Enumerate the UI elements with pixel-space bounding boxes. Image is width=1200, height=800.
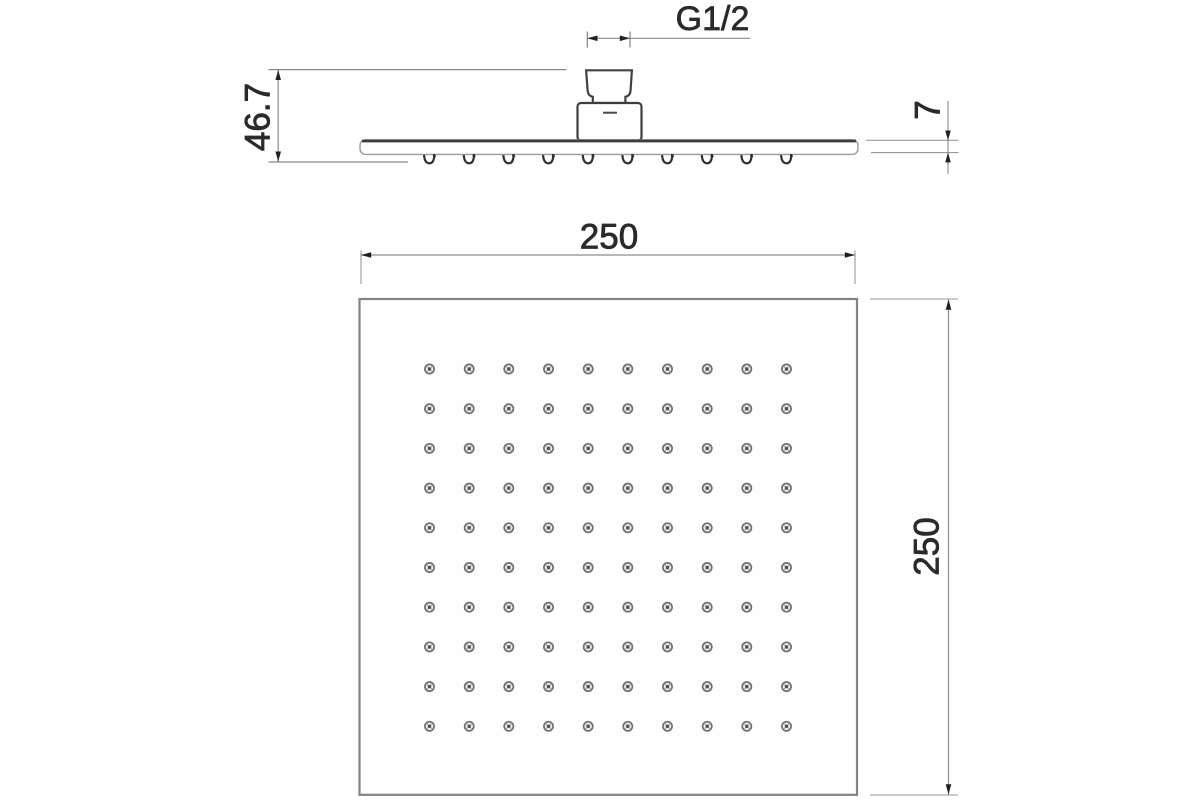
svg-text:46.7: 46.7 [238,83,277,151]
svg-text:250: 250 [580,218,638,257]
svg-text:G1/2: G1/2 [676,0,750,38]
svg-text:250: 250 [907,517,946,575]
svg-text:7: 7 [908,100,947,119]
